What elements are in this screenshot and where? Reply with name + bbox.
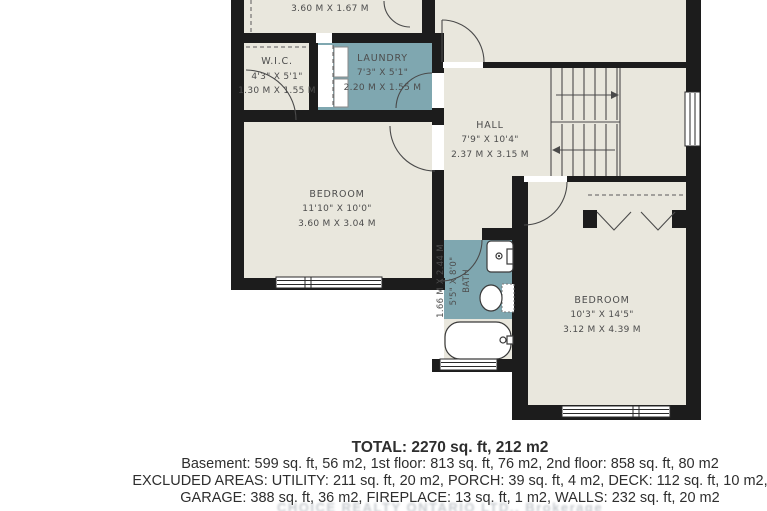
wall-closet-stub-left	[583, 210, 597, 228]
room-dim-metric: 1.30 M X 1.55 M	[237, 84, 317, 99]
room-dim-imperial: 5'5" X 8'0"	[448, 226, 461, 336]
area-summary: TOTAL: 2270 sq. ft, 212 m2 Basement: 599…	[83, 439, 767, 507]
excluded-areas-line: EXCLUDED AREAS: UTILITY: 211 sq. ft, 20 …	[83, 473, 767, 490]
room-dim-metric: 3.12 M X 4.39 M	[532, 323, 672, 338]
room-name: BEDROOM	[267, 187, 407, 202]
sink-drain-icon	[498, 255, 500, 257]
wall-bath-top	[482, 228, 523, 240]
floorplan-page: 3.60 M X 1.67 M W.I.C. 4'3" X 5'1" 1.30 …	[0, 0, 767, 511]
room-name: BEDROOM	[532, 293, 672, 308]
room-name: HALL	[430, 118, 550, 133]
room-dim-imperial: 11'10" X 10'0"	[267, 202, 407, 217]
window-bedroom-left	[276, 277, 382, 288]
wall-left-outer	[231, 0, 244, 290]
opening-bedroom-right-door	[524, 176, 567, 182]
tub-drain-icon	[500, 337, 506, 343]
hall-label: HALL 7'9" X 10'4" 2.37 M X 3.15 M	[430, 118, 550, 163]
room-dim-imperial: 7'3" X 5'1"	[320, 66, 445, 81]
tub-faucet-icon	[507, 336, 513, 344]
bedroom-left-label: BEDROOM 11'10" X 10'0" 3.60 M X 3.04 M	[267, 187, 407, 232]
room-dim-imperial: 7'9" X 10'4"	[430, 133, 550, 148]
wall-bedroom-left-top	[231, 110, 444, 122]
top-room-label: 3.60 M X 1.67 M	[250, 2, 410, 17]
total-area-line: TOTAL: 2270 sq. ft, 212 m2	[83, 439, 767, 456]
opening-top-right-room-door	[443, 62, 483, 68]
room-dim-imperial: 10'3" X 14'5"	[532, 308, 672, 323]
toilet-bowl-icon	[480, 285, 502, 311]
room-dim-metric: 3.60 M X 3.04 M	[267, 217, 407, 232]
room-name: BATH	[461, 226, 474, 336]
wic-label: W.I.C. 4'3" X 5'1" 1.30 M X 1.55 M	[237, 55, 317, 99]
top-right-room-floor	[435, 0, 686, 62]
wall-top-rooms-divider	[422, 0, 435, 43]
room-dim-metric: 1.66 M X 2.44 M	[435, 226, 448, 336]
toilet-tank-icon	[502, 284, 514, 312]
opening-top-room-laundry	[316, 33, 332, 43]
room-name: W.I.C.	[237, 55, 317, 70]
room-name: LAUNDRY	[320, 51, 445, 66]
floor-areas-line: Basement: 599 sq. ft, 56 m2, 1st floor: …	[83, 456, 767, 473]
wall-right-outer	[686, 0, 701, 420]
bedroom-right-label: BEDROOM 10'3" X 14'5" 3.12 M X 4.39 M	[532, 293, 672, 338]
bath-label: 1.66 M X 2.44 M 5'5" X 8'0" BATH	[435, 226, 475, 336]
room-dim-metric: 2.37 M X 3.15 M	[430, 148, 550, 163]
room-dim-imperial: 4'3" X 5'1"	[237, 70, 317, 85]
sink-faucet-icon	[507, 249, 513, 264]
room-dim-metric: 2.20 M X 1.55 M	[320, 81, 445, 96]
room-dim-metric: 3.60 M X 1.67 M	[250, 2, 410, 17]
wall-top-room-bottom	[231, 33, 442, 43]
excluded-areas-line2: GARAGE: 388 sq. ft, 36 m2, FIREPLACE: 13…	[83, 490, 767, 507]
window-bath	[440, 359, 497, 370]
window-bedroom-right	[562, 406, 670, 417]
laundry-label: LAUNDRY 7'3" X 5'1" 2.20 M X 1.55 M	[320, 51, 445, 96]
window-right-wall	[685, 92, 700, 146]
